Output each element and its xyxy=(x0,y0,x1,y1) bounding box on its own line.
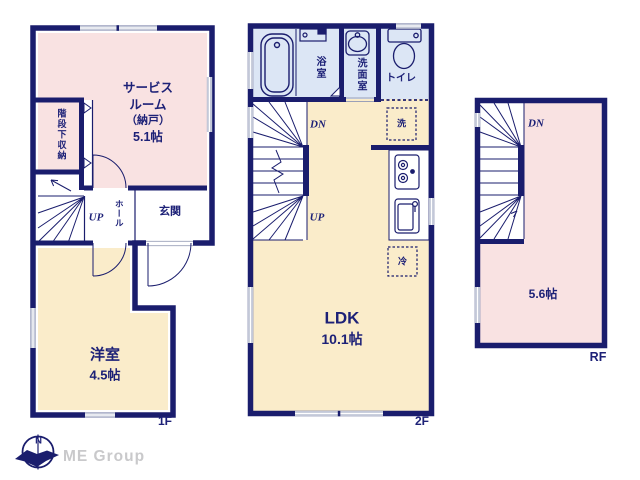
2f-up-label: UP xyxy=(310,213,325,224)
floorplan-page: サービス ルーム （納戸） 5.1帖 階段下収納 UP ホール 玄関 洋室 4.… xyxy=(0,0,640,480)
western-room-size-label: 4.5帖 xyxy=(89,369,120,382)
under-stair-storage-label: 階段下収納 xyxy=(57,109,66,162)
rf-dn-label: DN xyxy=(528,119,544,130)
bath-label: 浴室 xyxy=(314,56,324,80)
hall-label: ホール xyxy=(115,200,124,229)
washroom-label: 洗面室 xyxy=(355,58,365,93)
floor-1f-label: 1F xyxy=(158,415,172,427)
1f-up-label: UP xyxy=(89,213,104,224)
service-room-size-label: 5.1帖 xyxy=(133,131,163,144)
ldk-label: LDK xyxy=(325,310,360,327)
compass-n-label: N xyxy=(35,436,42,446)
service-room-label-line2: ルーム xyxy=(129,99,166,112)
rf-size-label: 5.6帖 xyxy=(529,288,558,300)
ldk-size-label: 10.1帖 xyxy=(321,332,362,346)
entrance-label: 玄関 xyxy=(159,207,181,218)
toilet-label: トイレ xyxy=(386,74,416,84)
floor-2f-label: 2F xyxy=(415,415,429,427)
washer-label: 洗 xyxy=(397,120,406,129)
2f-dn-label: DN xyxy=(310,120,326,131)
fridge-label: 冷 xyxy=(398,257,407,266)
floor-rf-plan xyxy=(475,98,607,348)
brand-name: ME Group xyxy=(63,448,145,466)
service-room-label-line3: （納戸） xyxy=(126,116,170,127)
western-room-label: 洋室 xyxy=(90,348,120,363)
floor-rf-label: RF xyxy=(590,351,607,364)
service-room-label-line1: サービス xyxy=(123,82,173,95)
1f-closet-sliver xyxy=(84,100,93,188)
entrance-door-arc xyxy=(148,243,191,286)
